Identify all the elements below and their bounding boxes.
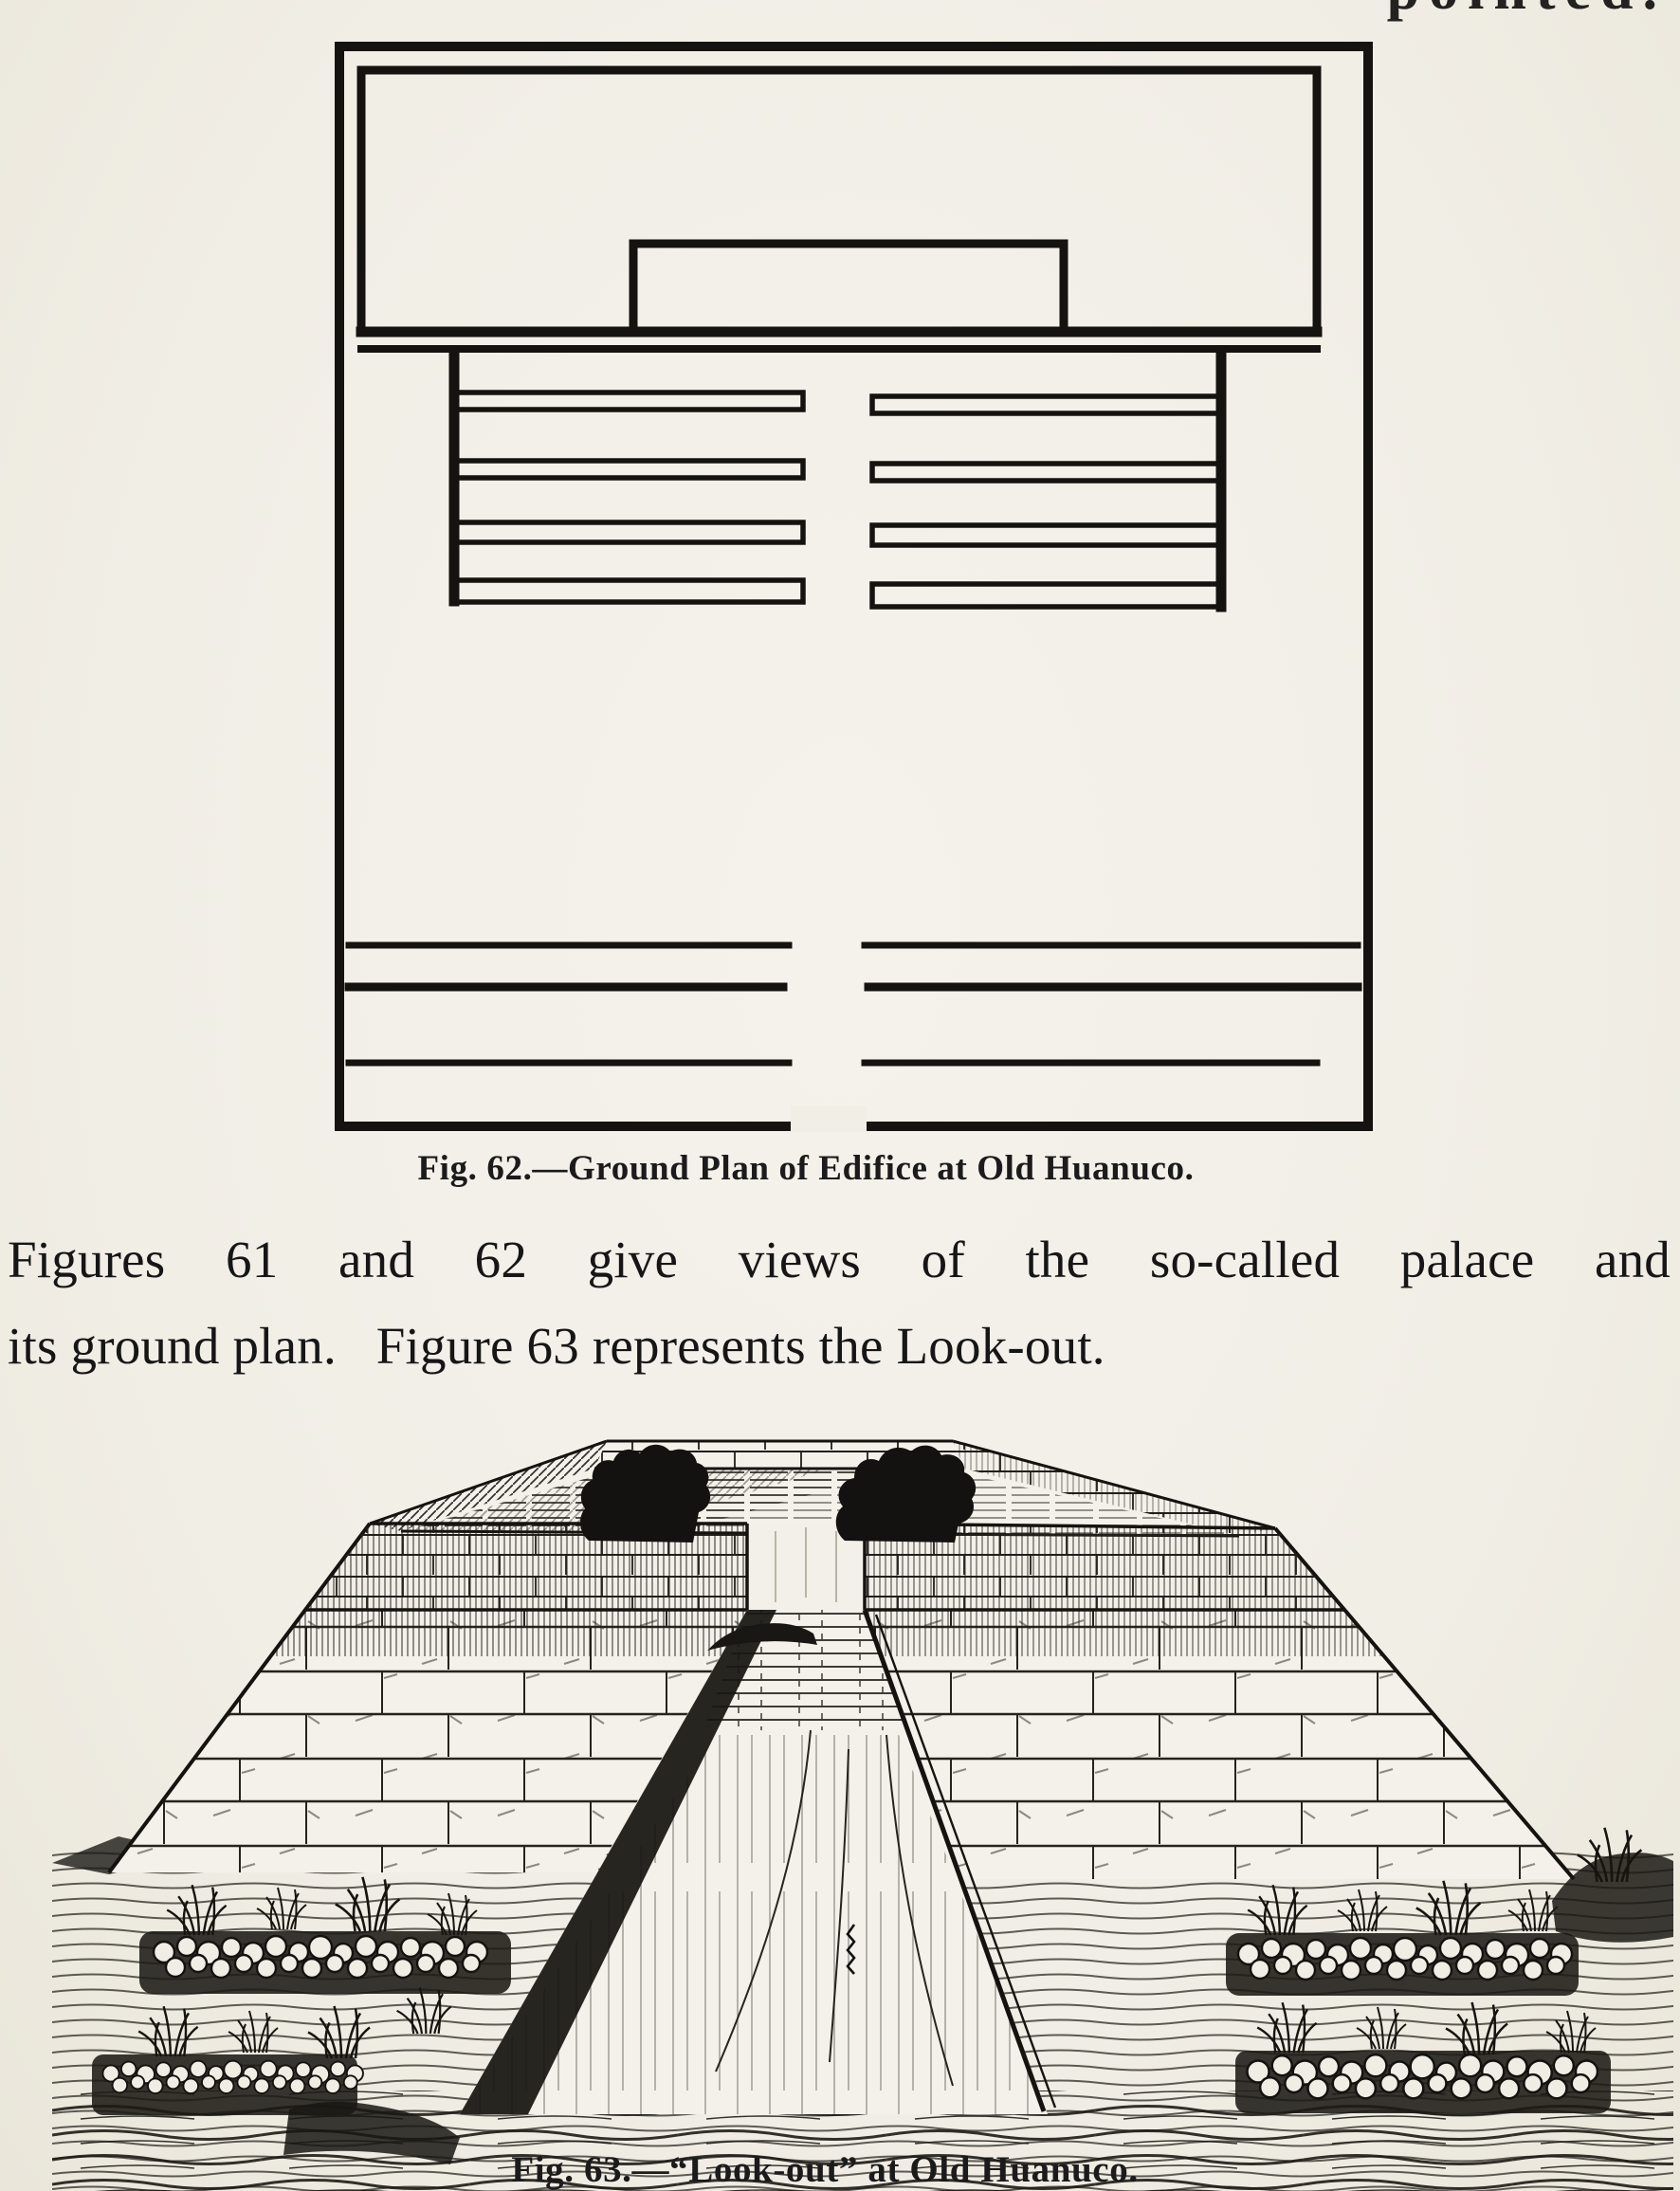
engraving-top-platform <box>370 1441 1275 1536</box>
figure63-caption: Fig. 63.—“Look-out” at Old Huanuco. <box>0 2148 1650 2191</box>
engraving-parapet <box>305 1524 1344 1610</box>
paragraph-line-1: Figures 61 and 62 give views of the so-c… <box>8 1230 1671 1289</box>
clipped-word: pointed. <box>1387 0 1667 24</box>
figure62-ground-plan-drawing <box>332 38 1375 1136</box>
plan-inner-rectangle <box>633 244 1064 330</box>
book-page: { "page": { "paper_color": "#f1eee6", "i… <box>0 0 1680 2191</box>
paragraph-line-2: its ground plan. Figure 63 represents th… <box>8 1316 1671 1376</box>
figure62-caption: Fig. 62.—Ground Plan of Edifice at Old H… <box>0 1148 1612 1189</box>
plan-lower-corridors <box>349 945 1358 1063</box>
clipped-text-fragment: pointed. <box>1269 0 1667 28</box>
figure63-lookout-engraving <box>52 1408 1673 2191</box>
plan-right-rooms <box>872 396 1221 607</box>
plan-left-rooms <box>456 393 803 602</box>
plan-bottom-doorway-gap <box>791 1105 867 1132</box>
plan-top-room-walls <box>361 70 1317 332</box>
